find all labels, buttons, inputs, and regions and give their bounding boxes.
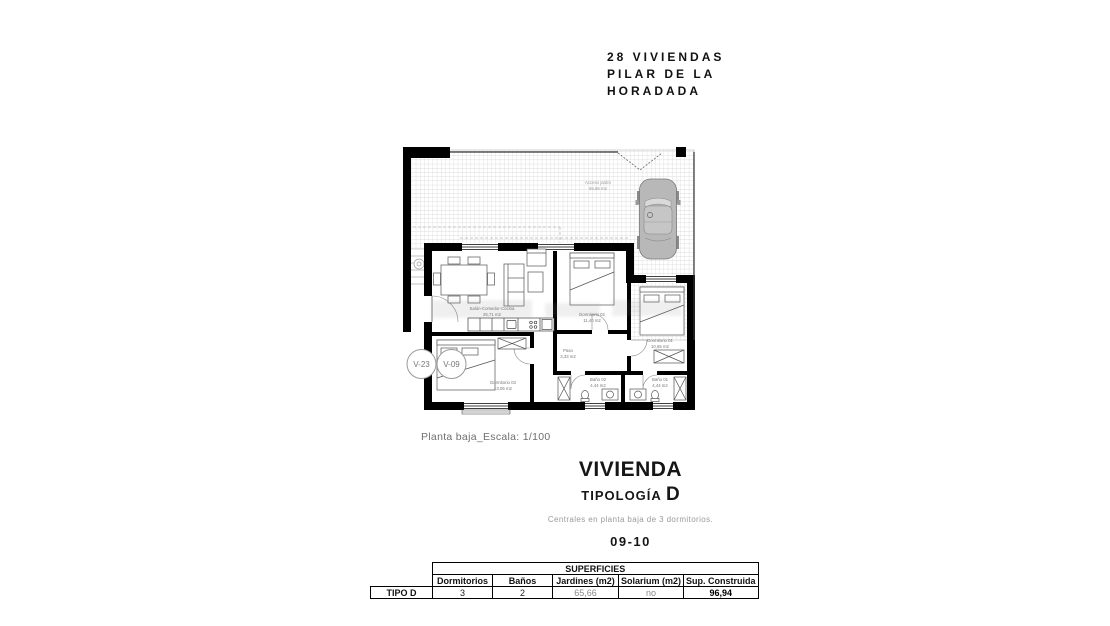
- room-area: 10,65 m2: [651, 344, 670, 349]
- room-label: Baño 01: [652, 377, 669, 382]
- row-header-tipo-d: TIPO D: [371, 587, 433, 599]
- garden-label: Acceso jardín: [585, 180, 612, 185]
- room-area: 4,44 m2: [652, 383, 668, 388]
- typology-block: VIVIENDA TIPOLOGÍA D Centrales en planta…: [528, 458, 733, 549]
- bath02-fixtures: [558, 377, 618, 402]
- typology-title: VIVIENDA: [528, 458, 733, 482]
- project-title-line: 28 VIVIENDAS: [607, 49, 747, 66]
- plan-caption: Planta baja_Escala: 1/100: [421, 431, 551, 443]
- table-spacer: [371, 563, 433, 575]
- typology-description: Centrales en planta baja de 3 dormitorio…: [528, 515, 733, 524]
- cell-jardines: 65,66: [553, 587, 619, 599]
- typology-subtitle-prefix: TIPOLOGÍA: [581, 488, 661, 503]
- room-label: Dormitorio 02: [579, 312, 605, 317]
- col-header-solarium: Solarium (m2): [619, 575, 684, 587]
- typology-letter: D: [666, 484, 680, 505]
- room-label: Dormitorio 03: [490, 380, 516, 385]
- room-area: 11,40 m2: [583, 318, 601, 323]
- car-icon: [636, 179, 681, 259]
- room-label: Dormitorio 01: [647, 338, 673, 343]
- dining-table: [434, 257, 495, 303]
- drain-icon: [414, 259, 424, 269]
- room-label: Baño 02: [590, 377, 607, 382]
- unit-circle-label: V-09: [443, 360, 460, 369]
- room-label: Paso: [563, 348, 573, 353]
- cell-dormitorios: 3: [433, 587, 493, 599]
- table-spacer: [371, 575, 433, 587]
- bed-dorm02: [570, 253, 614, 305]
- col-header-banos: Baños: [493, 575, 553, 587]
- kitchen-counter: [468, 318, 554, 331]
- cell-sup-construida: 96,94: [684, 587, 759, 599]
- surfaces-table: SUPERFICIES Dormitorios Baños Jardines (…: [370, 562, 759, 599]
- bed-dorm01: [640, 287, 684, 363]
- room-area: 25,71 m2: [483, 312, 502, 317]
- room-label: Salón-Comedor-Cocina: [470, 306, 516, 311]
- units-range: 09-10: [528, 534, 733, 549]
- room-area: 3,33 m2: [560, 354, 576, 359]
- room-area: 13,05 m2: [494, 386, 513, 391]
- table-title: SUPERFICIES: [433, 563, 759, 575]
- unit-circle-label: V-23: [413, 360, 430, 369]
- typology-subtitle: TIPOLOGÍA D: [528, 484, 733, 506]
- cell-solarium: no: [619, 587, 684, 599]
- project-title-line: PILAR DE LA: [607, 66, 747, 83]
- garden-area: 65,66 m2: [589, 186, 608, 191]
- col-header-dormitorios: Dormitorios: [433, 575, 493, 587]
- room-area: 4,44 m2: [590, 383, 606, 388]
- project-title-line: HORADADA: [607, 83, 747, 100]
- col-header-jardines: Jardines (m2): [553, 575, 619, 587]
- cell-banos: 2: [493, 587, 553, 599]
- sofa: [504, 249, 546, 306]
- col-header-sup-construida: Sup. Construida: [684, 575, 759, 587]
- project-title: 28 VIVIENDAS PILAR DE LA HORADADA: [607, 49, 747, 100]
- plan-sheet: 28 VIVIENDAS PILAR DE LA HORADADA: [0, 0, 1110, 626]
- unit-circles: V-23 V-09: [407, 350, 466, 379]
- floor-plan: Acceso jardín 65,66 m2: [400, 135, 700, 420]
